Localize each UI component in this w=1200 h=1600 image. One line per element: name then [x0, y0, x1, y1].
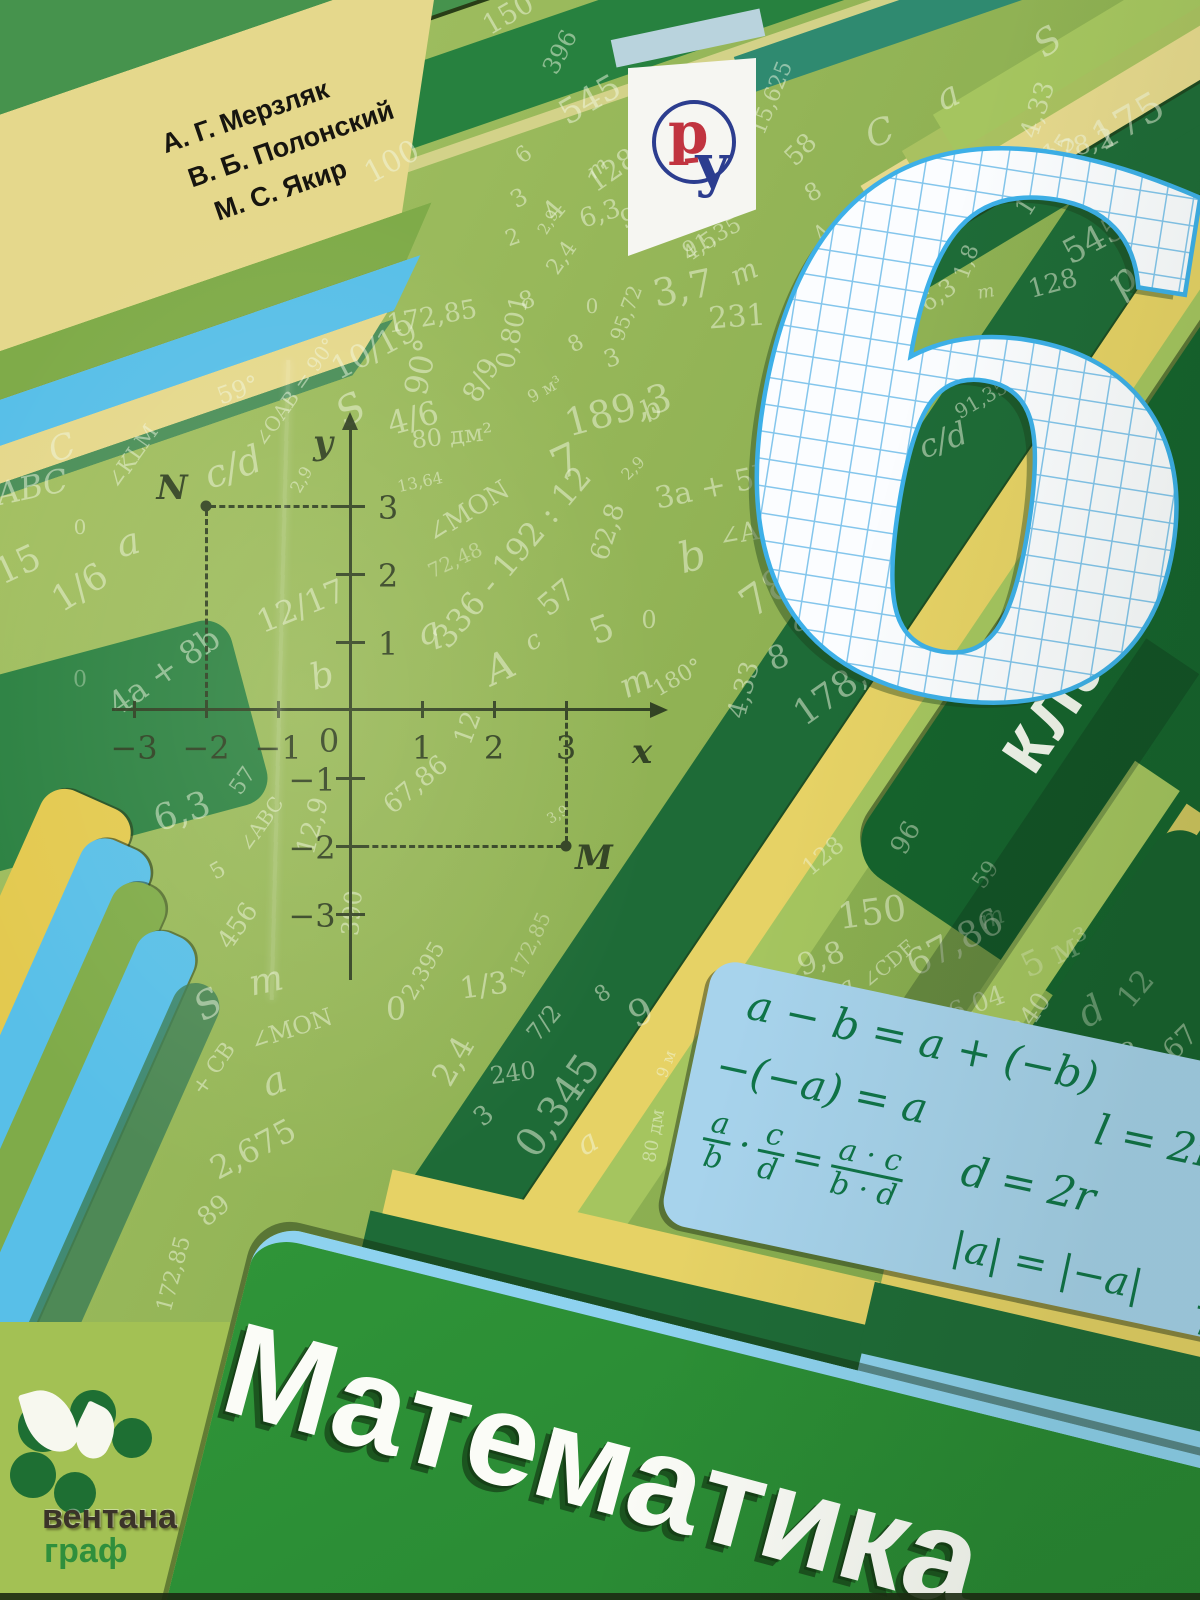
x-tick: [421, 701, 424, 718]
y-tick: [336, 777, 365, 780]
origin-label: 0: [319, 722, 339, 760]
y-tick-label: 3: [378, 489, 398, 527]
publisher-logo: вентана граф: [8, 1382, 228, 1594]
y-tick: [336, 913, 365, 916]
y-axis-arrow: [342, 412, 358, 430]
point-label-N: N: [156, 468, 187, 508]
fraction: ab: [696, 1106, 737, 1176]
x-tick-label: 2: [484, 729, 504, 767]
x-tick-label: 1: [412, 729, 432, 767]
x-tick-label: −3: [110, 729, 157, 767]
y-tick-label: −2: [288, 829, 335, 867]
y-tick-label: −3: [288, 897, 335, 935]
bottom-edge: [0, 1593, 1200, 1600]
formula-circumference: l = 2πr: [1091, 1105, 1200, 1184]
x-tick: [133, 701, 136, 718]
point-label-M: M: [575, 838, 613, 878]
y-axis-label: y: [313, 423, 333, 463]
butterfly-circle: [10, 1452, 56, 1498]
y-tick-label: 1: [378, 625, 398, 663]
dashed-line-h: [354, 845, 562, 848]
butterfly-wing-left: [18, 1383, 82, 1460]
x-axis-label: x: [632, 732, 652, 772]
book-cover: 15039610054512863422,486,39,84,53,7231m9…: [0, 0, 1200, 1600]
dashed-line-v: [565, 714, 568, 842]
publisher-name-line2: граф: [44, 1532, 128, 1571]
logo-letter-u: у: [694, 136, 731, 194]
point-N: [201, 501, 212, 512]
y-tick-label: 2: [378, 557, 398, 595]
x-axis: [112, 708, 652, 711]
fraction: cd: [751, 1117, 791, 1187]
y-tick: [336, 641, 365, 644]
dashed-line-h: [210, 505, 346, 508]
fraction: ab: [1191, 1274, 1200, 1344]
x-tick: [493, 701, 496, 718]
point-M: [561, 841, 572, 852]
grade-six-numeral: 6 6: [720, 112, 1200, 772]
formula-diameter: d = 2r: [957, 1146, 1100, 1222]
butterfly-circle: [112, 1418, 152, 1458]
y-axis: [349, 426, 352, 980]
fraction: a · cb · d: [824, 1133, 909, 1213]
dashed-line-v: [205, 510, 208, 706]
x-tick-label: −2: [182, 729, 229, 767]
y-tick: [336, 573, 365, 576]
y-tick-label: −1: [288, 761, 335, 799]
